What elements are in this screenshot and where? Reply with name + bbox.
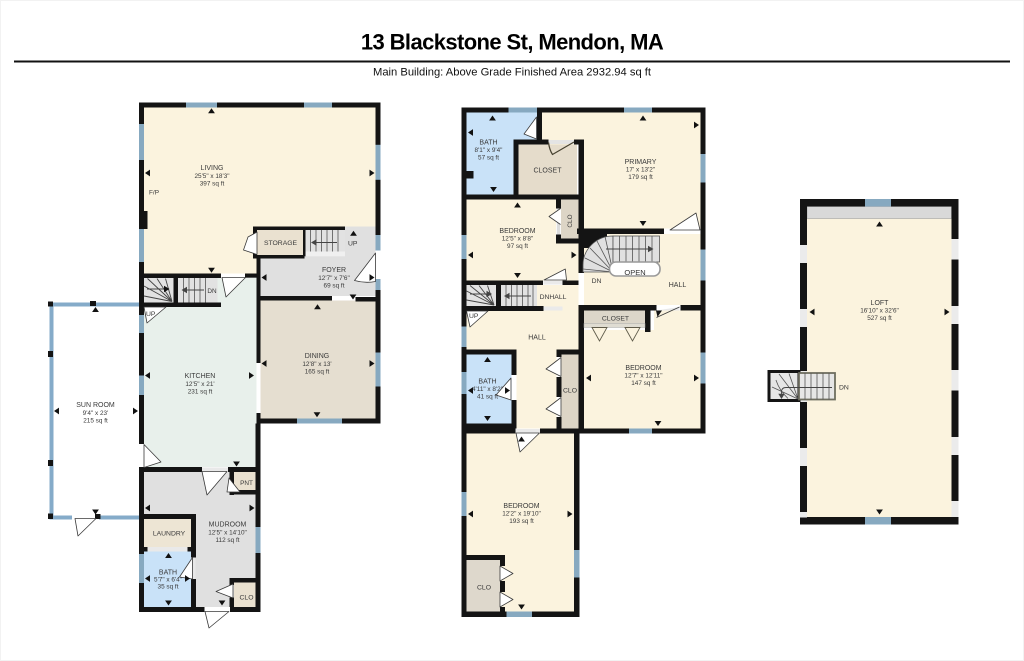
svg-text:12'7" x 7'6": 12'7" x 7'6" bbox=[318, 275, 350, 282]
svg-text:BATH: BATH bbox=[159, 570, 177, 577]
svg-text:SUN ROOM: SUN ROOM bbox=[76, 402, 115, 409]
svg-text:FOYER: FOYER bbox=[322, 267, 346, 274]
svg-text:12'7" x 12'11": 12'7" x 12'11" bbox=[624, 373, 662, 380]
svg-text:UP: UP bbox=[348, 241, 358, 248]
svg-text:LAUNDRY: LAUNDRY bbox=[153, 531, 186, 538]
svg-text:KITCHEN: KITCHEN bbox=[185, 373, 216, 380]
svg-text:13 Blackstone St, Mendon, MA: 13 Blackstone St, Mendon, MA bbox=[361, 30, 664, 55]
svg-text:UP: UP bbox=[146, 311, 156, 318]
svg-text:F/P: F/P bbox=[149, 190, 159, 197]
svg-text:97 sq ft: 97 sq ft bbox=[507, 243, 528, 250]
svg-text:OPEN: OPEN bbox=[624, 268, 645, 277]
svg-text:BATH: BATH bbox=[478, 379, 496, 386]
svg-text:BEDROOM: BEDROOM bbox=[625, 365, 661, 372]
svg-text:DN: DN bbox=[207, 288, 217, 295]
svg-text:Main Building: Above Grade Fin: Main Building: Above Grade Finished Area… bbox=[373, 67, 652, 79]
svg-text:PNT: PNT bbox=[240, 480, 253, 487]
svg-text:MUDROOM: MUDROOM bbox=[209, 522, 247, 529]
svg-text:16'10" x 32'6": 16'10" x 32'6" bbox=[860, 308, 899, 315]
svg-text:12'8" x 13': 12'8" x 13' bbox=[302, 361, 331, 368]
svg-text:CLO: CLO bbox=[477, 585, 491, 592]
svg-text:12'5" x 14'10": 12'5" x 14'10" bbox=[208, 529, 247, 536]
svg-text:DNHALL: DNHALL bbox=[540, 294, 567, 301]
svg-text:LOFT: LOFT bbox=[871, 300, 890, 307]
svg-text:12'5" x 21': 12'5" x 21' bbox=[185, 381, 214, 388]
svg-text:17' x 13'2": 17' x 13'2" bbox=[626, 167, 655, 174]
svg-text:12'5" x 8'8": 12'5" x 8'8" bbox=[502, 236, 534, 243]
svg-text:CLOSET: CLOSET bbox=[533, 168, 562, 175]
svg-text:LIVING: LIVING bbox=[201, 165, 224, 172]
svg-text:UP: UP bbox=[469, 313, 479, 320]
svg-text:CLO: CLO bbox=[240, 595, 254, 602]
svg-text:57 sq ft: 57 sq ft bbox=[478, 155, 499, 162]
svg-text:165 sq ft: 165 sq ft bbox=[305, 368, 330, 375]
svg-text:CLO: CLO bbox=[567, 214, 574, 227]
svg-text:41 sq ft: 41 sq ft bbox=[477, 394, 498, 401]
svg-text:4'11" x 8'2": 4'11" x 8'2" bbox=[472, 386, 503, 393]
svg-text:12'2" x 19'10": 12'2" x 19'10" bbox=[502, 511, 541, 518]
svg-text:69 sq ft: 69 sq ft bbox=[324, 282, 345, 289]
svg-text:HALL: HALL bbox=[669, 282, 687, 289]
svg-text:HALL: HALL bbox=[528, 335, 546, 342]
svg-text:5'7" x 6'4": 5'7" x 6'4" bbox=[154, 577, 182, 584]
svg-text:9'4" x 23': 9'4" x 23' bbox=[83, 410, 109, 417]
svg-text:CLO: CLO bbox=[563, 388, 577, 395]
svg-text:147 sq ft: 147 sq ft bbox=[631, 380, 656, 387]
svg-text:DN: DN bbox=[839, 385, 849, 392]
svg-text:231 sq ft: 231 sq ft bbox=[188, 388, 213, 395]
svg-text:215 sq ft: 215 sq ft bbox=[83, 417, 108, 424]
svg-text:527 sq ft: 527 sq ft bbox=[867, 315, 892, 322]
svg-text:BATH: BATH bbox=[479, 140, 497, 147]
svg-text:193 sq ft: 193 sq ft bbox=[509, 518, 534, 525]
svg-text:STORAGE: STORAGE bbox=[264, 240, 298, 247]
svg-text:8'1" x 9'4": 8'1" x 9'4" bbox=[475, 147, 503, 154]
svg-text:397 sq ft: 397 sq ft bbox=[200, 181, 225, 188]
svg-text:BEDROOM: BEDROOM bbox=[499, 228, 535, 235]
svg-text:CLOSET: CLOSET bbox=[602, 316, 629, 323]
svg-text:BEDROOM: BEDROOM bbox=[503, 503, 539, 510]
svg-text:35 sq ft: 35 sq ft bbox=[158, 584, 179, 591]
svg-text:DN: DN bbox=[592, 278, 602, 285]
svg-text:179 sq ft: 179 sq ft bbox=[628, 174, 653, 181]
svg-text:112 sq ft: 112 sq ft bbox=[215, 537, 239, 544]
svg-text:25'5" x 18'3": 25'5" x 18'3" bbox=[194, 173, 229, 180]
svg-text:PRIMARY: PRIMARY bbox=[625, 159, 657, 166]
svg-text:DINING: DINING bbox=[305, 353, 330, 360]
